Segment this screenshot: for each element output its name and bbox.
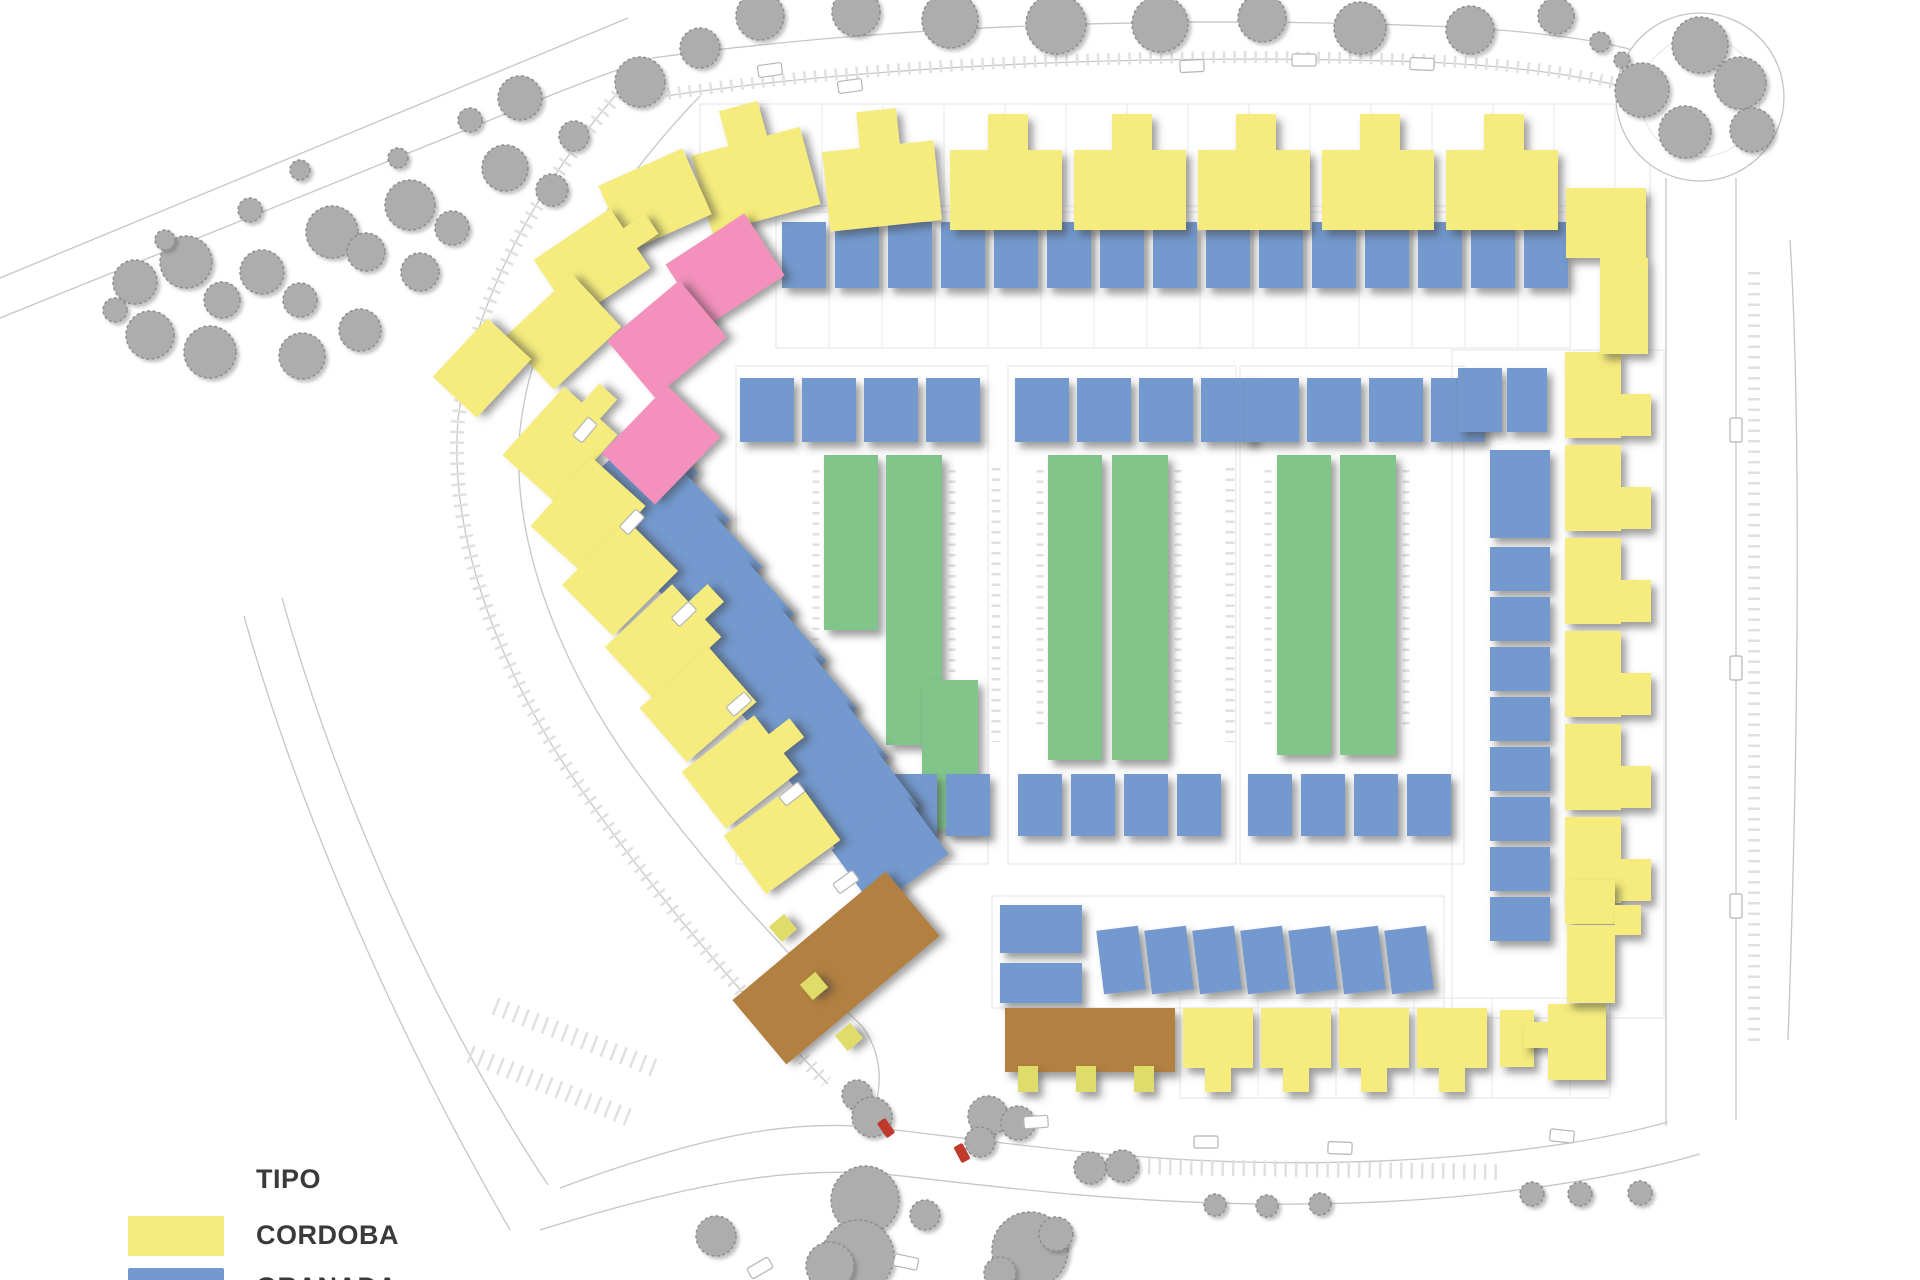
site-plan-canvas	[0, 0, 1920, 1280]
building-granada	[1015, 378, 1069, 442]
tree	[536, 174, 568, 206]
tree	[965, 1127, 995, 1157]
tree	[290, 160, 310, 180]
car	[757, 62, 782, 77]
tree	[1446, 6, 1494, 54]
tree	[1106, 1150, 1138, 1182]
building-granada	[994, 222, 1038, 288]
building-granada	[1018, 774, 1062, 836]
building-cordoba	[1261, 1008, 1331, 1092]
building-granada	[1144, 926, 1193, 995]
building-granada	[1458, 368, 1502, 432]
building-granada	[1071, 774, 1115, 836]
building-cordoba	[1565, 538, 1651, 624]
car	[1328, 1142, 1352, 1155]
tree	[482, 145, 528, 191]
car	[1180, 59, 1205, 72]
building-granada	[1047, 222, 1091, 288]
building-cordoba	[1565, 631, 1651, 717]
car	[1194, 1136, 1218, 1148]
tree	[1590, 32, 1610, 52]
tree	[680, 28, 720, 68]
building-granada	[888, 222, 932, 288]
building-granada	[1407, 774, 1451, 836]
tree	[1659, 106, 1711, 158]
building-granada	[941, 222, 985, 288]
building-lime	[1134, 1066, 1154, 1092]
tree	[615, 57, 665, 107]
car	[1024, 1115, 1049, 1129]
building-cordoba	[1417, 1008, 1487, 1092]
building-cordoba	[1198, 114, 1310, 230]
tree	[240, 250, 284, 294]
building-granada	[1000, 905, 1082, 953]
building-lime	[1076, 1066, 1096, 1092]
tree	[1520, 1182, 1544, 1206]
building-cordoba	[1322, 114, 1434, 230]
tree	[1714, 57, 1766, 109]
building-granada	[1301, 774, 1345, 836]
building-green	[824, 455, 878, 630]
building-granada	[1336, 926, 1385, 995]
tree	[1074, 1152, 1106, 1184]
building-cordoba	[950, 114, 1062, 230]
tree	[103, 298, 127, 322]
building-granada	[1096, 926, 1145, 995]
tree	[155, 230, 175, 250]
building-granada	[1288, 926, 1337, 995]
building-granada	[1139, 378, 1193, 442]
building-granada	[1490, 647, 1550, 691]
tree	[1568, 1182, 1592, 1206]
building-granada	[1248, 774, 1292, 836]
tree	[385, 180, 435, 230]
tree	[922, 0, 978, 48]
building-granada	[1365, 222, 1409, 288]
building-cordoba	[1074, 114, 1186, 230]
tree	[1614, 52, 1630, 68]
tree	[696, 1216, 736, 1256]
tree	[1628, 1181, 1652, 1205]
car	[1410, 57, 1435, 70]
tree	[435, 211, 469, 245]
tree	[204, 282, 240, 318]
car	[1292, 54, 1316, 66]
tree	[1256, 1195, 1278, 1217]
building-granada	[802, 378, 856, 442]
road-edge	[282, 598, 548, 1185]
tree	[1538, 0, 1574, 34]
tree	[1026, 0, 1086, 54]
tree	[347, 233, 385, 271]
tree	[113, 260, 157, 304]
building-granada	[1240, 926, 1289, 995]
building-granada	[1490, 797, 1550, 841]
building-granada	[1354, 774, 1398, 836]
tree	[1204, 1194, 1226, 1216]
tree	[401, 253, 439, 291]
building-cordoba	[1339, 1008, 1409, 1092]
tree	[458, 108, 482, 132]
tree	[1039, 1217, 1073, 1251]
building-granada	[1077, 378, 1131, 442]
tree	[1615, 63, 1669, 117]
site-plan: TIPO CORDOBA GRANADA	[0, 0, 1920, 1280]
building-granada	[1259, 222, 1303, 288]
car	[893, 1254, 919, 1271]
building-granada	[1192, 926, 1241, 995]
building-granada	[1100, 222, 1144, 288]
road-edge	[244, 616, 510, 1230]
building-lime	[769, 914, 797, 942]
tree	[1334, 2, 1386, 54]
building-cordoba	[818, 105, 942, 232]
building-granada	[1124, 774, 1168, 836]
building-lime	[835, 1023, 863, 1051]
building-granada	[1490, 547, 1550, 591]
building-green	[1277, 455, 1331, 755]
car	[1730, 656, 1742, 680]
tree	[1132, 0, 1188, 52]
building-granada	[1369, 378, 1423, 442]
building-granada	[1490, 697, 1550, 741]
tree	[1730, 108, 1774, 152]
building-cordoba	[1183, 1008, 1253, 1092]
parking-ticks	[668, 57, 1626, 94]
car	[1730, 894, 1742, 918]
building-green	[1112, 455, 1168, 760]
building-granada	[740, 378, 794, 442]
building-granada	[1307, 378, 1361, 442]
building-granada	[1206, 222, 1250, 288]
building-granada	[1507, 368, 1547, 432]
building-granada	[1490, 897, 1550, 941]
tree	[388, 148, 408, 168]
building-cordoba	[1565, 724, 1651, 810]
tree	[559, 121, 589, 151]
road-edge	[666, 59, 1628, 96]
parking-ticks	[495, 1006, 655, 1068]
building-granada	[864, 378, 918, 442]
building-cordoba	[1524, 1004, 1606, 1080]
building-cordoba	[1446, 114, 1558, 230]
tree	[498, 76, 542, 120]
building-lime	[1018, 1066, 1038, 1092]
building-cordoba	[1565, 445, 1651, 531]
tree	[238, 198, 262, 222]
building-cordoba	[1566, 188, 1648, 354]
building-granada	[1490, 450, 1550, 538]
building-granada	[1312, 222, 1356, 288]
building-granada	[1471, 222, 1515, 288]
building-granada	[1490, 747, 1550, 791]
building-granada	[1384, 926, 1433, 995]
building-granada	[782, 222, 826, 288]
tree	[1672, 17, 1728, 73]
building-granada	[1490, 597, 1550, 641]
car	[747, 1257, 774, 1279]
parking-ticks	[1106, 1166, 1500, 1172]
tree	[279, 333, 325, 379]
tree	[1238, 0, 1286, 42]
car	[1549, 1129, 1574, 1143]
building-green	[1340, 455, 1396, 755]
building-granada	[1245, 378, 1299, 442]
building-granada	[926, 378, 980, 442]
building-granada	[1524, 222, 1568, 288]
tree	[1309, 1193, 1331, 1215]
tree	[832, 0, 880, 36]
tree	[736, 0, 784, 40]
building-granada	[1000, 963, 1082, 1003]
road-edge	[1788, 240, 1797, 1040]
building-green	[1048, 455, 1102, 760]
building-granada	[1177, 774, 1221, 836]
parking-ticks	[470, 1054, 630, 1118]
car	[1730, 418, 1742, 442]
building-brown	[1005, 1008, 1175, 1072]
car	[837, 78, 862, 93]
building-granada	[835, 222, 879, 288]
building-cordoba	[1565, 880, 1615, 924]
tree	[910, 1200, 940, 1230]
tree	[184, 326, 236, 378]
building-granada	[1418, 222, 1462, 288]
building-granada	[946, 774, 990, 836]
building-granada	[1153, 222, 1197, 288]
building-cordoba	[1565, 352, 1651, 438]
building-granada	[1490, 847, 1550, 891]
tree	[339, 309, 381, 351]
car	[833, 870, 859, 894]
tree	[126, 311, 174, 359]
tree	[283, 283, 317, 317]
